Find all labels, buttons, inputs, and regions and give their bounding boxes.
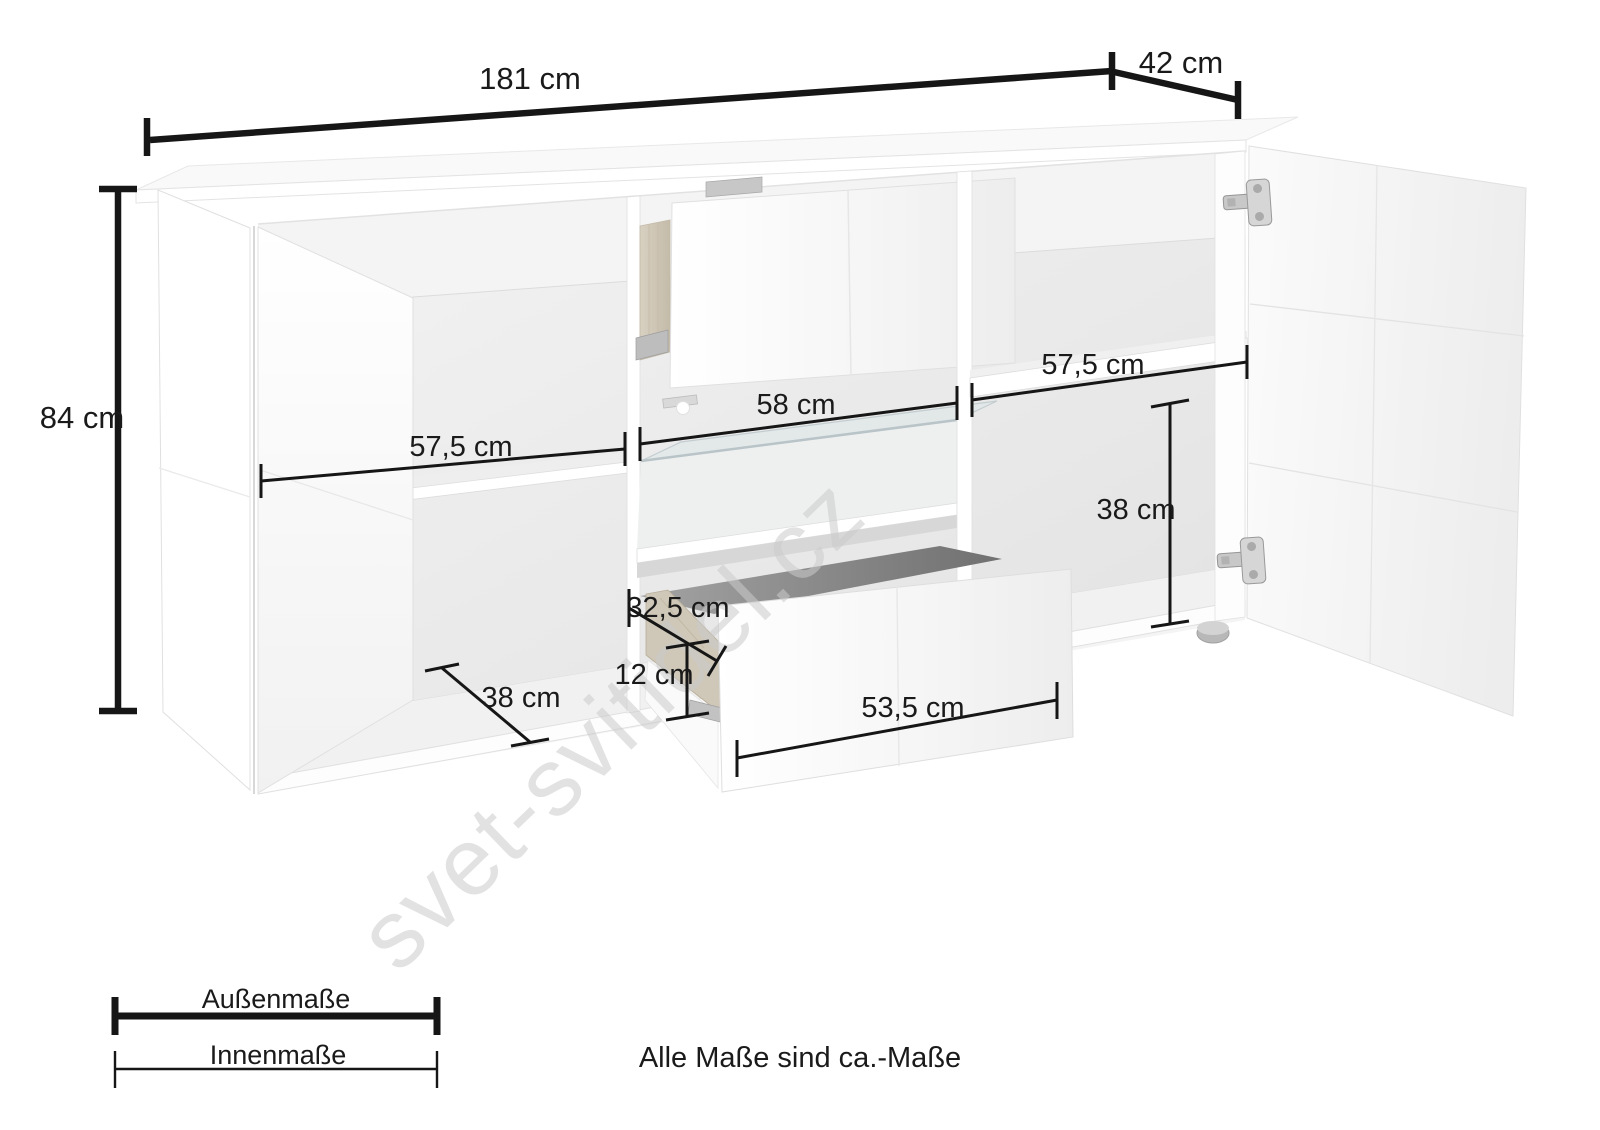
cabinet-drawing [136, 117, 1526, 794]
legend-outer-label: Außenmaße [202, 984, 351, 1014]
legend-inner-label: Innenmaße [210, 1040, 347, 1070]
label-left-depth: 38 cm [482, 682, 561, 714]
measurement-note: Alle Maße sind ca.-Maße [639, 1042, 961, 1074]
label-total-width: 181 cm [479, 61, 581, 96]
left-door [158, 190, 250, 790]
dimension-total-height [99, 189, 137, 711]
right-door [1216, 146, 1526, 716]
label-drawer-depth: 32,5 cm [626, 592, 729, 624]
label-right-width: 57,5 cm [1041, 349, 1144, 381]
cabinet-foot [1197, 621, 1229, 643]
label-right-height: 38 cm [1097, 494, 1176, 526]
left-door-panel [158, 190, 250, 790]
label-drawer-width: 53,5 cm [861, 692, 964, 724]
right-door-panel [1247, 146, 1526, 716]
label-total-height: 84 cm [40, 400, 124, 435]
legend: Außenmaße Innenmaße Alle Maße sind ca.-M… [115, 984, 961, 1088]
label-drawer-height: 12 cm [615, 659, 694, 691]
diagram-canvas: svet-svitidel.cz [0, 0, 1600, 1130]
label-middle-width: 58 cm [757, 389, 836, 421]
led-spot [677, 402, 690, 415]
label-total-depth: 42 cm [1139, 45, 1223, 80]
left-side-wall [258, 227, 413, 793]
label-left-width: 57,5 cm [409, 431, 512, 463]
furniture-dimension-diagram: svet-svitidel.cz [0, 0, 1600, 1130]
